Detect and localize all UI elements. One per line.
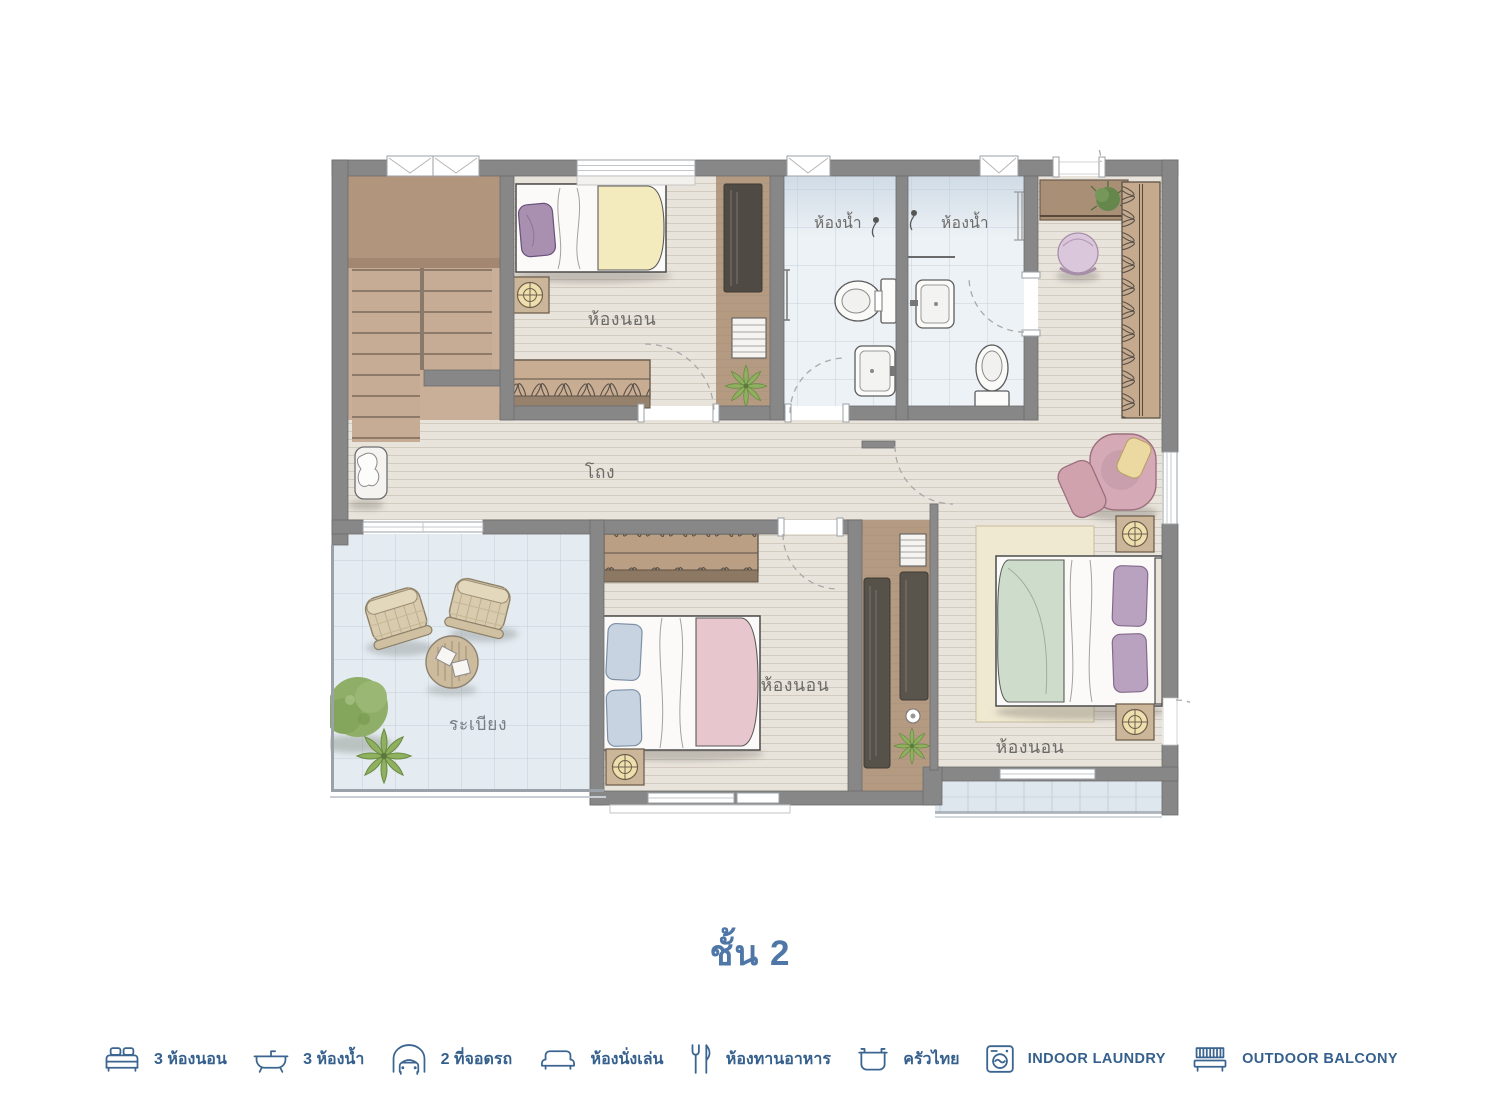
legend-item-bathrooms: 3 ห้องน้ำ (251, 1044, 364, 1075)
bed-double (602, 616, 760, 750)
legend-label: 2 ที่จอดรถ (441, 1047, 513, 1072)
window (387, 156, 479, 176)
sofa-icon (537, 1045, 579, 1074)
toilet (975, 345, 1009, 407)
wardrobe-rail (508, 360, 650, 408)
door-arc (1058, 150, 1101, 162)
legend-label: 3 ห้องนอน (154, 1047, 227, 1072)
room-label-bathroom-right: ห้องน้ำ (941, 211, 989, 232)
window (1000, 769, 1095, 779)
window (363, 522, 483, 532)
nightstand-lamp (1116, 704, 1154, 740)
bed-king (996, 556, 1162, 706)
legend-item-thai-kitchen: ครัวไทย (855, 1044, 959, 1074)
legend-label: OUTDOOR BALCONY (1242, 1051, 1398, 1067)
legend-item-dining-room: ห้องทานอาหาร (688, 1042, 831, 1076)
bed-icon (102, 1044, 142, 1075)
toilet (835, 279, 896, 323)
window (577, 160, 695, 185)
cutlery-icon (688, 1042, 714, 1076)
wardrobe-dark (864, 578, 890, 768)
car-icon (389, 1043, 429, 1076)
window (980, 156, 1018, 176)
bed-single (516, 184, 666, 272)
wardrobe-rail (604, 534, 758, 582)
legend-item-outdoor-balcony: OUTDOOR BALCONY (1190, 1044, 1398, 1075)
window (787, 156, 830, 176)
bedroom-middle-furniture (600, 534, 764, 785)
pouf-chair (1058, 233, 1098, 274)
wardrobe-dark (900, 572, 928, 700)
legend-item-parking: 2 ที่จอดรถ (389, 1043, 513, 1076)
nightstand-lamp (606, 749, 644, 785)
room-label-bathroom-left: ห้องน้ำ (814, 211, 862, 232)
room-label-bedroom-right: ห้องนอน (996, 737, 1065, 757)
staircase (348, 176, 500, 442)
window (1163, 452, 1177, 524)
legend-item-indoor-laundry: INDOOR LAUNDRY (984, 1043, 1166, 1075)
bench-icon (1190, 1044, 1230, 1075)
room-label-bedroom-middle: ห้องนอน (761, 675, 830, 695)
plant-icon (894, 728, 930, 764)
wardrobe-long (1122, 182, 1160, 418)
plant-icon (725, 365, 766, 406)
round-table (426, 636, 478, 696)
room-label-hall: โถง (585, 462, 615, 482)
floor-plan-image: ห้องนอน ห้องน้ำ ห้องน้ำ โถง ห้องนอน ห้อง… (330, 150, 1190, 840)
bathtub-icon (251, 1044, 291, 1075)
plant-icon (357, 729, 411, 783)
legend-item-bedrooms: 3 ห้องนอน (102, 1044, 227, 1075)
pot-icon (855, 1044, 891, 1074)
legend-label: INDOOR LAUNDRY (1028, 1051, 1166, 1067)
floor-title: ชั้น 2 (0, 926, 1500, 981)
legend-item-living-room: ห้องนั่งเล่น (537, 1045, 664, 1074)
shelf-stack (900, 534, 926, 566)
nightstand-lamp (511, 277, 549, 313)
door-arc (1176, 700, 1190, 745)
room-label-balcony: ระเบียง (449, 714, 507, 734)
hall-chair (355, 447, 387, 499)
sink (855, 346, 896, 396)
legend-label: 3 ห้องน้ำ (303, 1047, 364, 1072)
nightstand-lamp (1116, 516, 1154, 552)
legend-label: ห้องนั่งเล่น (591, 1047, 664, 1072)
door-opening (1058, 162, 1101, 174)
room-label-bedroom-top: ห้องนอน (588, 309, 657, 329)
door-opening (1163, 698, 1177, 745)
washing-machine-icon (984, 1043, 1016, 1075)
sink (910, 280, 954, 328)
legend-label: ห้องทานอาหาร (726, 1047, 831, 1072)
legend-label: ครัวไทย (903, 1047, 959, 1072)
legend-bar: 3 ห้องนอน 3 ห้องน้ำ 2 ที่จอดรถ ห้องนั่งเ… (102, 1042, 1398, 1076)
